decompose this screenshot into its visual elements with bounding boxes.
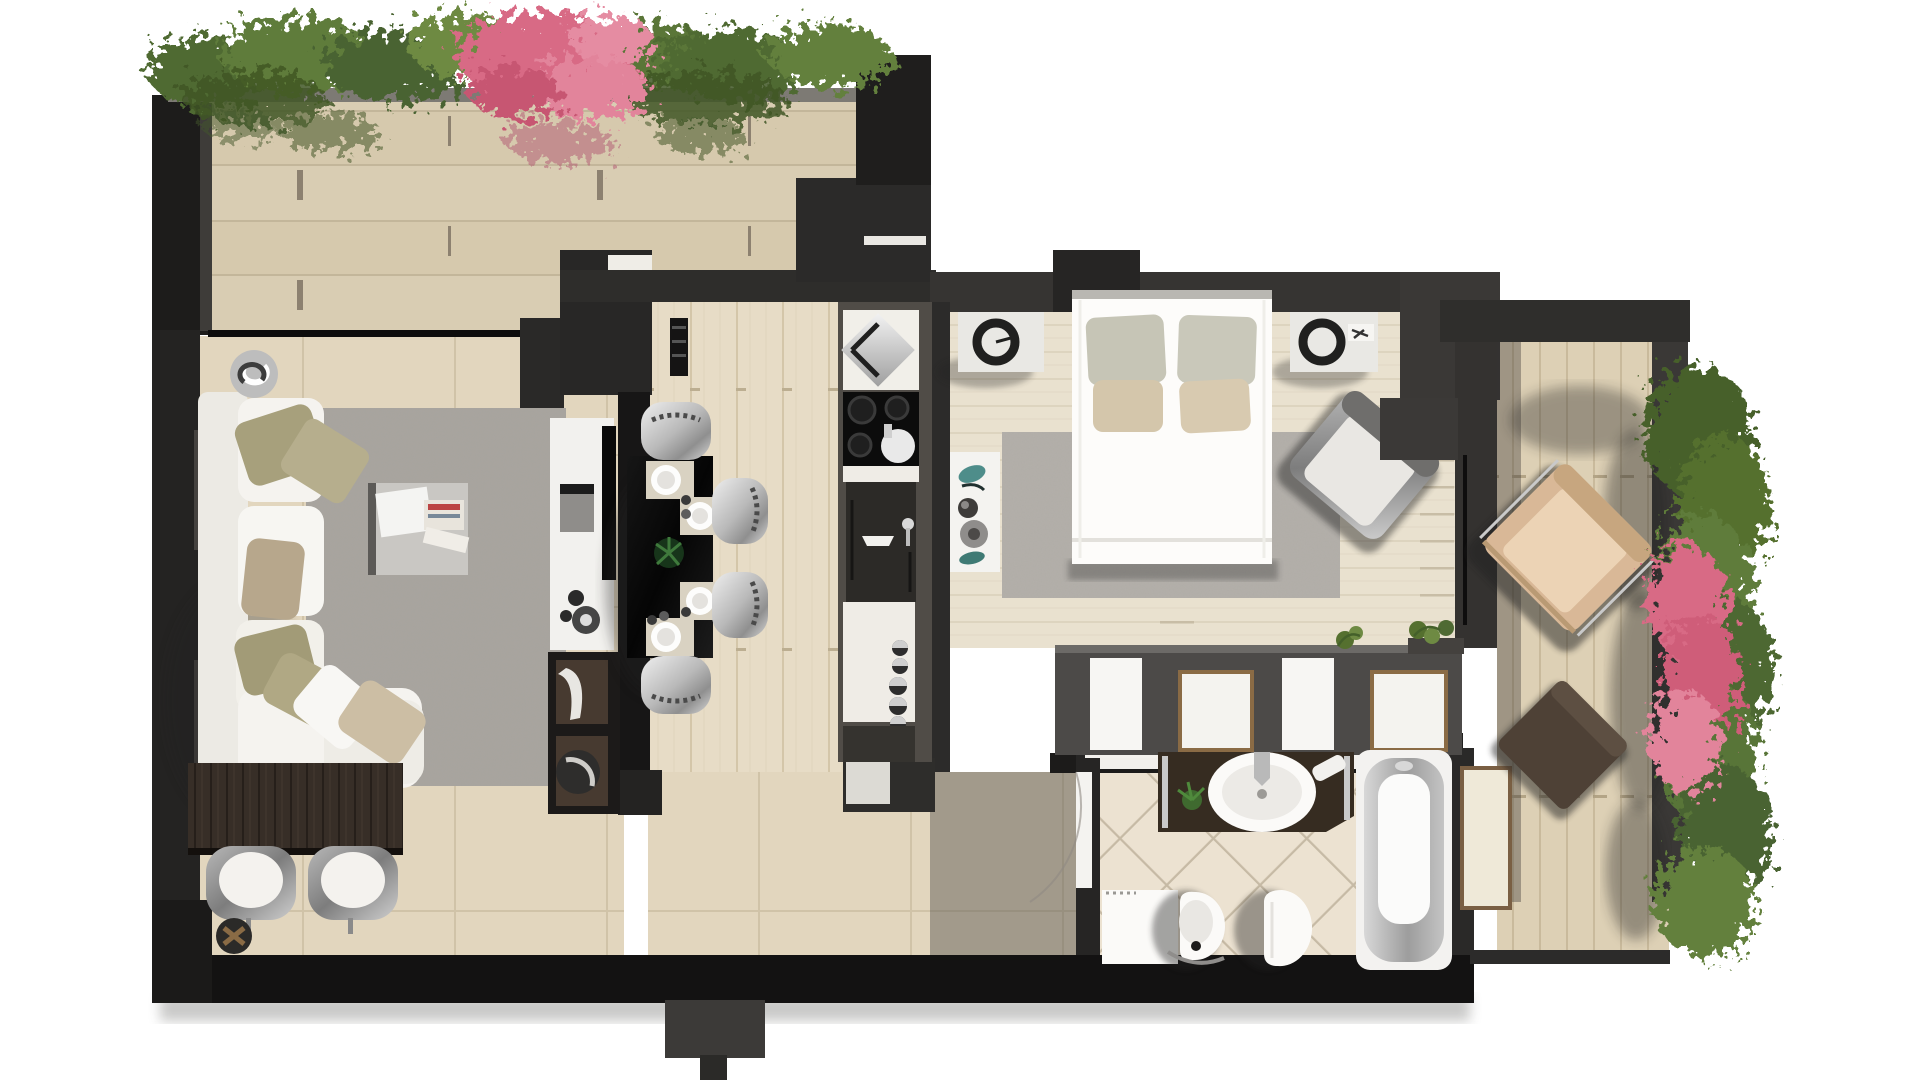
pillow-sage-left: [1085, 314, 1166, 386]
chrome-chair-bottom: [641, 656, 711, 714]
wall-desk: [1380, 398, 1458, 460]
pillow-beige-left: [1093, 380, 1163, 432]
planter-stool: [216, 918, 252, 954]
prep-dish: [862, 536, 894, 546]
coffee-table: [368, 483, 469, 575]
wardrobe-panel-1: [1090, 658, 1142, 750]
double-bed: [1068, 290, 1278, 580]
pillow-sage-right: [1177, 315, 1257, 386]
pillow-beige-right: [1179, 378, 1252, 434]
headboard: [1072, 290, 1272, 299]
base-cabinet: [843, 602, 915, 732]
wardrobe-panel-4: [1372, 672, 1446, 750]
floor-plan: [0, 0, 1920, 1080]
chrome-chair-right-lower: [712, 572, 768, 638]
decor-console: [950, 452, 1000, 572]
cooktop: [843, 392, 919, 466]
vanity: [1158, 752, 1354, 832]
media-shelves: [548, 652, 620, 814]
tv-cabinet: [550, 418, 616, 650]
prep-counter: [846, 482, 916, 602]
round-decor-bowl: [230, 350, 278, 398]
bathtub: [1356, 750, 1452, 970]
chrome-chair-right-upper: [712, 478, 768, 544]
chrome-chair-top: [641, 402, 711, 460]
kitchen-counter-run: [838, 302, 932, 762]
diamond-sink-module: [841, 310, 919, 390]
wardrobe-panel-2: [1180, 672, 1252, 750]
hallway-shadowed-floor: [930, 772, 1080, 960]
wardrobe-panel-3: [1282, 658, 1334, 750]
console-table-dining: [188, 763, 403, 855]
tub-side-panel: [1462, 768, 1510, 908]
